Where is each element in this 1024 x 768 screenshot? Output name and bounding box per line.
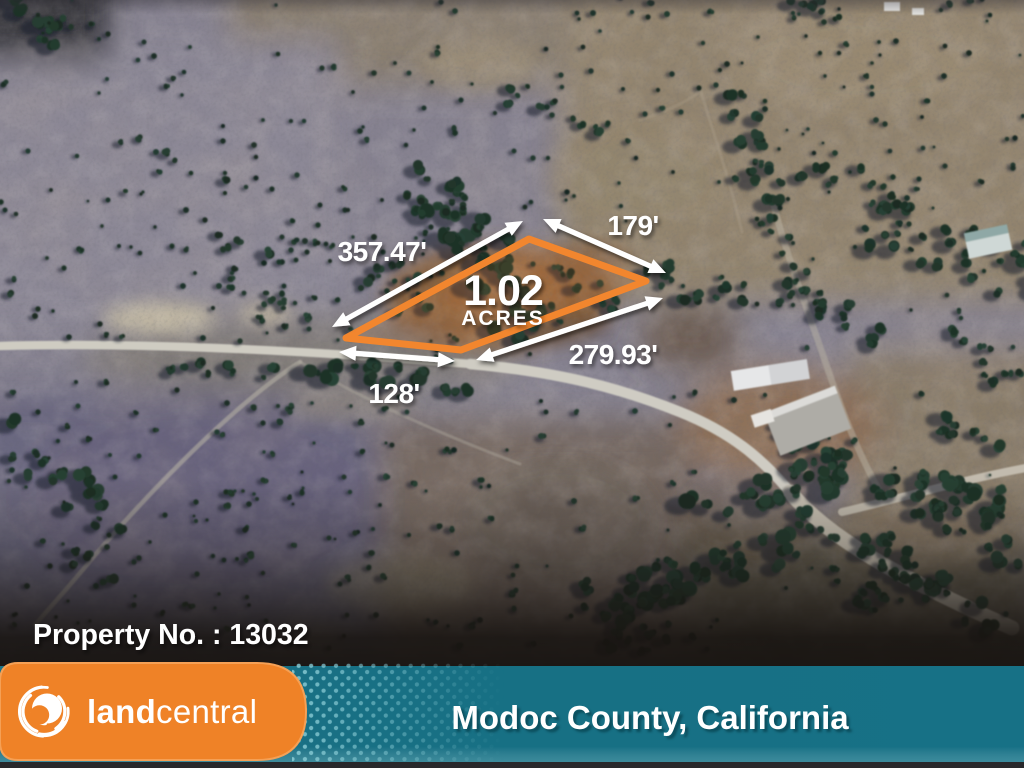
svg-text:landcentral: landcentral (87, 693, 257, 730)
svg-text:279.93': 279.93' (569, 339, 658, 370)
svg-text:ACRES: ACRES (461, 307, 545, 330)
svg-text:Property No. : 13032: Property No. : 13032 (33, 619, 309, 651)
svg-text:128': 128' (368, 378, 419, 409)
svg-text:179': 179' (607, 210, 658, 241)
svg-text:Modoc County, California: Modoc County, California (451, 699, 849, 736)
svg-text:357.47': 357.47' (338, 236, 427, 267)
